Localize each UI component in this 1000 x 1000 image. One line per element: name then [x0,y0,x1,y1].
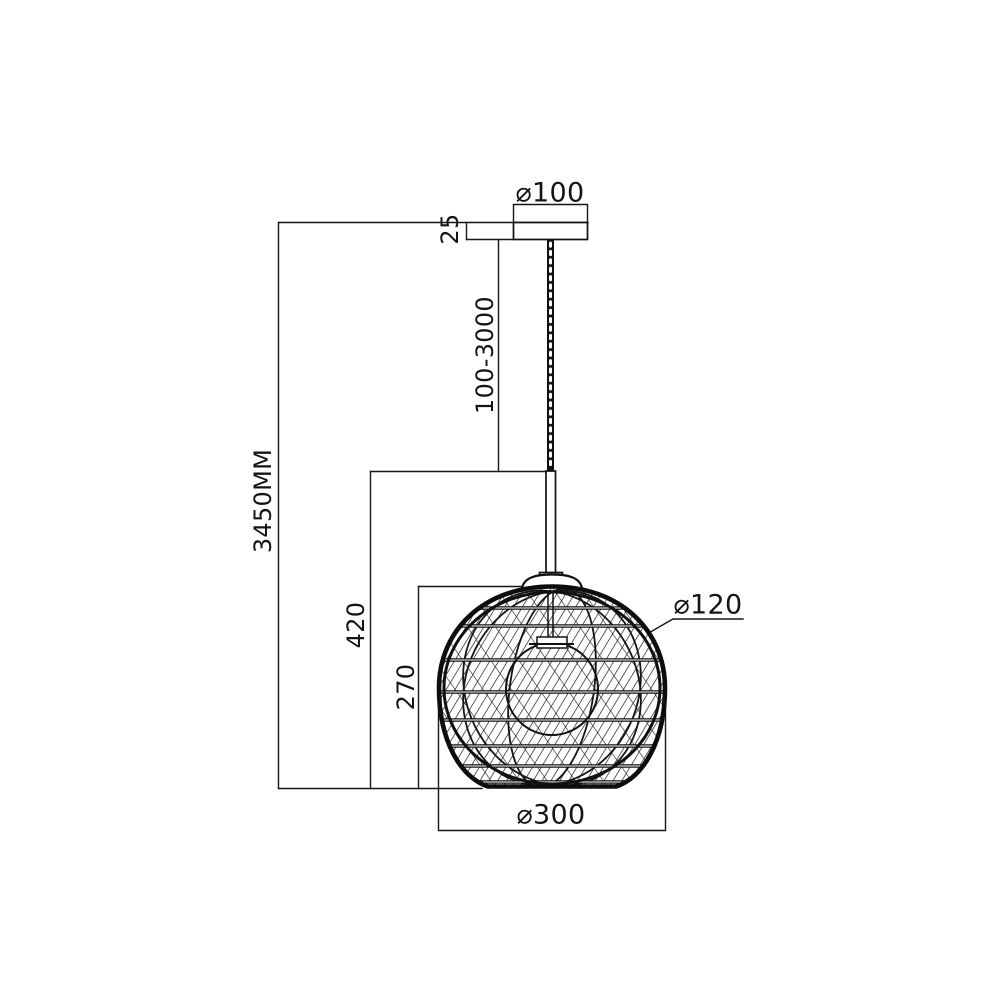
dim-suspension-range-label: 100-3000 [473,296,497,414]
dim-total-height-label: 3450MM [251,449,275,553]
dim-canopy-diameter-label: ⌀100 [516,180,585,207]
diagram-page: 3450MM 25 ⌀100 100-3000 420 270 ⌀120 ⌀30… [0,0,1000,1000]
ceiling-canopy [514,223,588,240]
stem-rod [540,471,563,579]
dim-shade-height-label: 270 [394,664,418,711]
shade-globe [420,560,682,815]
dim-inner-diameter-label: ⌀120 [674,592,743,619]
dim-body-height-label: 420 [344,602,368,649]
dim-shade-diameter-label: ⌀300 [517,802,586,829]
dim-canopy-height-label: 25 [438,213,462,244]
lamp-diagram-canvas [0,0,1000,1000]
